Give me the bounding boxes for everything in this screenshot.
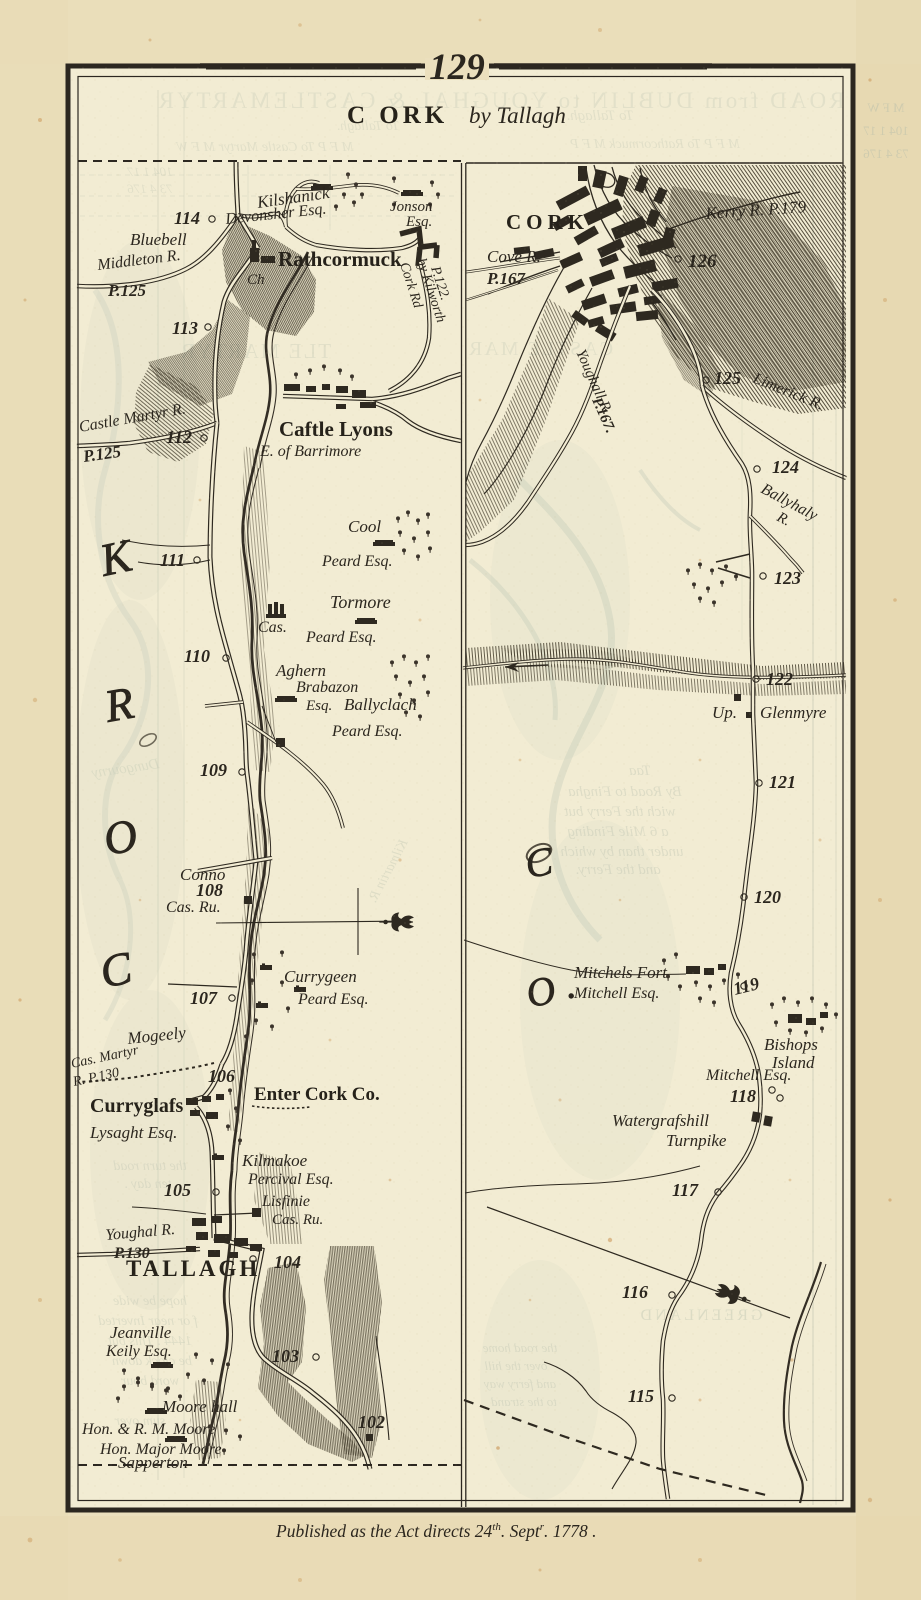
svg-text:Published as the Act directs 2: Published as the Act directs 24th. Septr…	[275, 1521, 597, 1541]
svg-text:73 4 176: 73 4 176	[863, 146, 909, 161]
svg-text:104 1 17: 104 1 17	[863, 123, 909, 138]
svg-text:C ORK: C ORK	[347, 102, 448, 129]
svg-text:M F W: M F W	[867, 100, 905, 115]
svg-text:by Tallagh: by Tallagh	[469, 103, 566, 128]
